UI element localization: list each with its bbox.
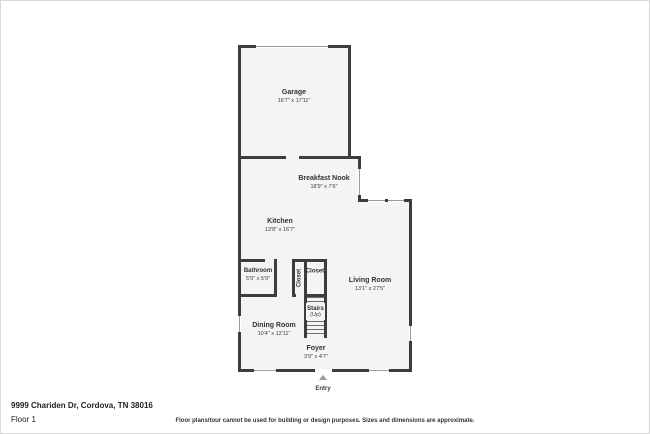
room-label-kitchen: Kitchen 13'8" x 16'7" xyxy=(265,218,295,234)
entry-label: Entry xyxy=(315,386,330,392)
window xyxy=(409,326,412,341)
room-name: Living Room xyxy=(349,277,391,286)
window xyxy=(254,369,276,372)
address-text: 9999 Chariden Dr, Cordova, TN 38016 xyxy=(11,401,153,410)
room-name: Dining Room xyxy=(252,322,296,331)
entry-arrow-icon xyxy=(319,375,327,380)
room-label-living-room: Living Room 13'1" x 27'5" xyxy=(349,277,391,293)
room-label-bathroom: Bathroom 5'5" x 5'9" xyxy=(244,268,272,282)
wall-segment xyxy=(348,48,351,156)
wall-segment xyxy=(238,369,254,372)
room-label-stairs: Stairs (Up) xyxy=(306,303,325,320)
room-label-closet-side: Closet xyxy=(296,269,304,287)
room-dims: 13'8" x 16'7" xyxy=(265,227,295,234)
disclaimer-text: Floor plans/tour cannot be used for buil… xyxy=(1,418,649,424)
room-name: Closet xyxy=(306,268,324,276)
room-dims: (Up) xyxy=(310,312,321,318)
room-name: Kitchen xyxy=(265,218,295,227)
wall-segment xyxy=(276,369,315,372)
room-label-garage: Garage 16'7" x 17'11" xyxy=(278,89,311,105)
room-dims: 3'9" x 4'7" xyxy=(304,354,328,361)
wall-segment xyxy=(409,341,412,372)
wall-segment xyxy=(292,262,295,297)
wall-segment xyxy=(274,259,277,297)
wall-segment xyxy=(292,294,296,297)
room-label-foyer: Foyer 3'9" x 4'7" xyxy=(304,345,328,361)
wall-segment xyxy=(299,156,361,159)
room-name: Bathroom xyxy=(244,268,272,276)
room-name: Garage xyxy=(278,89,311,98)
wall-segment xyxy=(238,48,241,316)
window-mullion xyxy=(385,199,388,202)
room-dims: 10'4" x 12'11" xyxy=(252,331,296,338)
room-label-breakfast-nook: Breakfast Nook 18'9" x 7'6" xyxy=(298,175,349,191)
wall-segment xyxy=(238,156,286,159)
room-label-dining-room: Dining Room 10'4" x 12'11" xyxy=(252,322,296,338)
room-dims: 16'7" x 17'11" xyxy=(278,98,311,105)
garage-door xyxy=(256,45,328,48)
wall-segment xyxy=(238,294,277,297)
room-name: Closet xyxy=(296,269,304,287)
room-name: Foyer xyxy=(304,345,328,354)
wall-segment xyxy=(358,159,361,169)
room-dims: 13'1" x 27'5" xyxy=(349,286,391,293)
room-dims: 18'9" x 7'6" xyxy=(298,184,349,191)
room-dims: 5'5" x 5'9" xyxy=(244,275,272,282)
wall-segment xyxy=(409,202,412,326)
window xyxy=(369,369,389,372)
wall-segment xyxy=(292,259,327,262)
wall-segment xyxy=(241,259,265,262)
wall-segment xyxy=(332,369,369,372)
wall-segment xyxy=(238,332,241,372)
window xyxy=(238,316,241,332)
wall-segment xyxy=(324,262,327,338)
wall-segment xyxy=(389,369,412,372)
room-name: Breakfast Nook xyxy=(298,175,349,184)
wall-segment xyxy=(358,199,368,202)
room-label-closet: Closet xyxy=(306,268,324,276)
window xyxy=(358,169,361,195)
wall-segment xyxy=(304,262,307,294)
floor-plan-page: Stairs (Up) Garage 16'7" x 17'11" Breakf… xyxy=(0,0,650,434)
